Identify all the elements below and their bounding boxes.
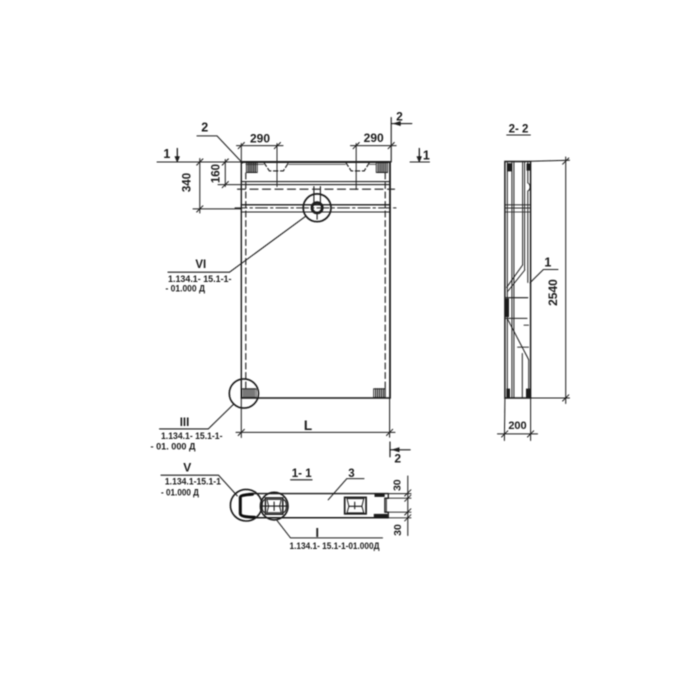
- svg-text:290: 290: [364, 131, 384, 145]
- svg-text:L: L: [304, 418, 312, 433]
- svg-text:2: 2: [396, 110, 403, 124]
- svg-text:2540: 2540: [546, 279, 560, 306]
- svg-text:30: 30: [392, 524, 404, 536]
- svg-text:2: 2: [201, 121, 208, 135]
- svg-text:- 01.000 Д: - 01.000 Д: [166, 283, 206, 294]
- svg-text:340: 340: [182, 173, 194, 192]
- svg-text:1- 1: 1- 1: [292, 468, 312, 480]
- svg-text:- 01.000 Д: - 01.000 Д: [161, 488, 199, 499]
- svg-text:290: 290: [250, 132, 270, 146]
- svg-text:200: 200: [508, 420, 526, 432]
- svg-text:2- 2: 2- 2: [509, 124, 529, 136]
- svg-text:160: 160: [211, 164, 223, 183]
- svg-text:1.134.1- 15.1-1-01.000Д: 1.134.1- 15.1-1-01.000Д: [290, 541, 380, 552]
- svg-text:V: V: [183, 461, 191, 475]
- svg-text:1: 1: [163, 147, 170, 161]
- svg-text:III: III: [180, 417, 190, 429]
- svg-text:30: 30: [392, 479, 404, 491]
- svg-text:1: 1: [544, 255, 551, 269]
- svg-text:1.134.1- 15.1-1-: 1.134.1- 15.1-1-: [161, 431, 223, 442]
- svg-text:1: 1: [423, 149, 430, 163]
- svg-text:2: 2: [394, 451, 401, 465]
- svg-text:- 01. 000 Д: - 01. 000 Д: [151, 441, 196, 452]
- svg-text:1.134.1-15.1-1: 1.134.1-15.1-1: [165, 476, 222, 487]
- svg-text:VI: VI: [195, 259, 206, 271]
